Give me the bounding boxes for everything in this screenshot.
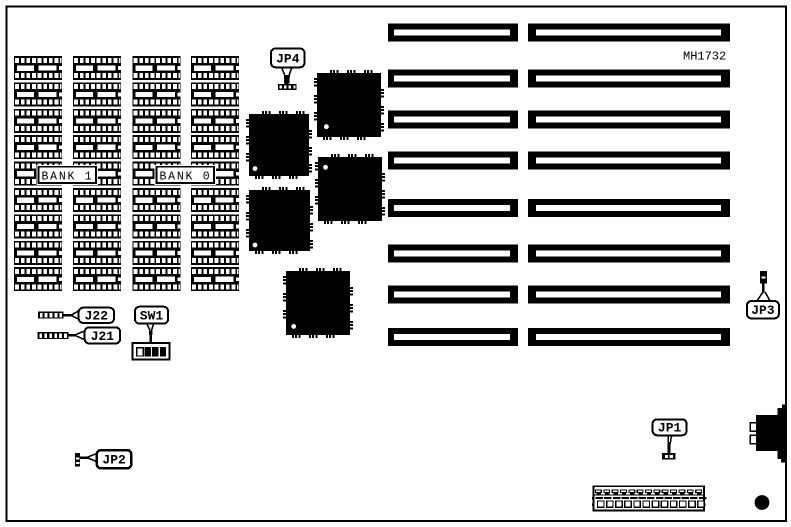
svg-text:BANK 0: BANK 0 [160,170,212,183]
svg-text:JP4: JP4 [276,51,300,66]
svg-text:JP1: JP1 [658,421,682,436]
svg-text:JP3: JP3 [751,303,775,318]
svg-text:BANK 1: BANK 1 [42,170,94,183]
svg-text:JP2: JP2 [102,453,126,468]
svg-text:SW1: SW1 [140,309,164,324]
svg-text:MH1732: MH1732 [683,49,726,63]
svg-text:J21: J21 [91,329,115,344]
svg-text:J22: J22 [85,309,109,324]
